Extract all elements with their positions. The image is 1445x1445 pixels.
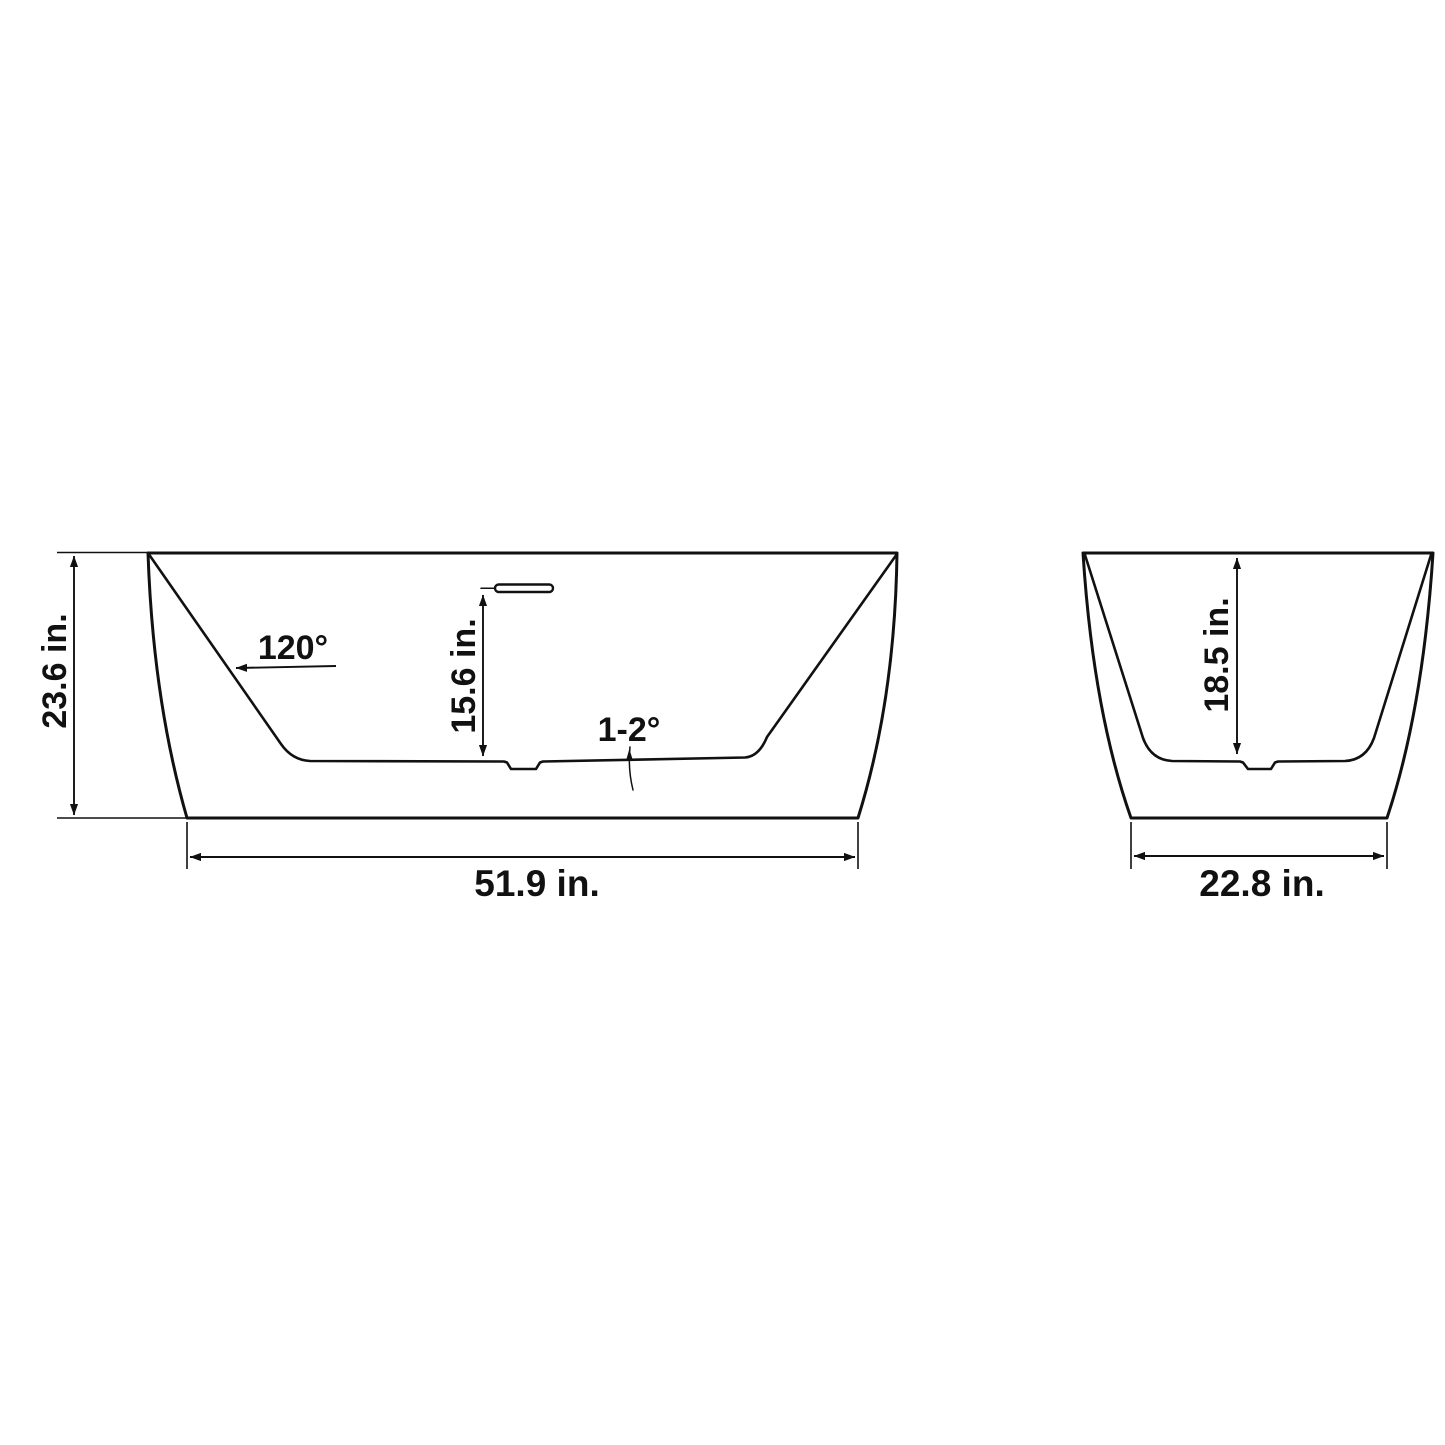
height-dimension-label: 23.6 in. (36, 613, 74, 728)
floor-slope-label: 1-2° (598, 711, 661, 749)
bathtub-dimension-drawing: 23.6 in. 120° 15.6 in. 1-2° 51.9 in. (0, 0, 1445, 1445)
canvas-background (0, 0, 1445, 1445)
drawing-svg: 23.6 in. 120° 15.6 in. 1-2° 51.9 in. (0, 0, 1445, 1445)
rim-angle-label: 120° (258, 629, 328, 667)
length-dimension-label: 51.9 in. (474, 863, 599, 904)
width-dimension-label: 22.8 in. (1199, 863, 1324, 904)
side-depth-dimension: 15.6 in. (445, 595, 483, 756)
side-depth-dimension-label: 15.6 in. (445, 618, 483, 733)
overflow-drain-icon (495, 585, 553, 593)
end-depth-dimension-label: 18.5 in. (1198, 597, 1236, 712)
